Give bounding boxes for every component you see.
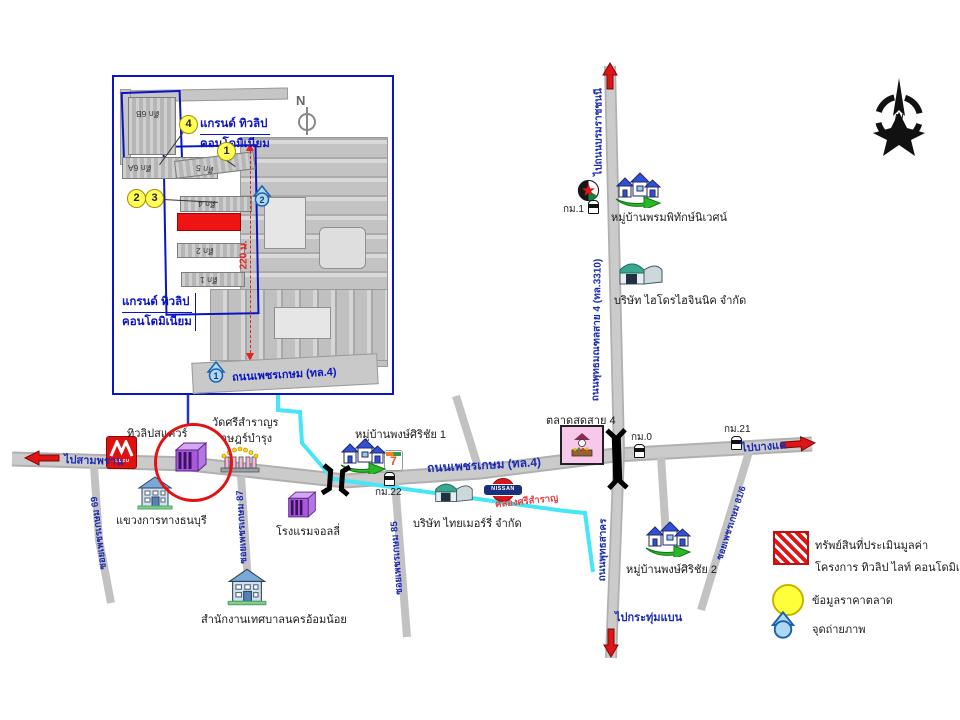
km22-post-icon (384, 472, 395, 486)
building-6a-label: ตึก 6A (128, 161, 151, 175)
project-name-label-bottom: แกรนด์ ทิวลิป คอนโดมิเนียม (122, 293, 196, 331)
km22-label: กม.22 (375, 485, 402, 500)
arrow-west-icon (24, 450, 60, 466)
market-data-point-1: 1 (217, 142, 236, 161)
sai4-road-label: ถนนพุทธมณฑลสาย 4 (ทล.3310) (588, 259, 605, 402)
to-bangkhae-label: ไปบางแค (740, 435, 787, 456)
building-6b (128, 97, 176, 155)
location-map: ตึก 6B ตึก 6A ตึก 5 ตึก 4 ตึก 2 ตึก 1 4 … (0, 0, 960, 720)
km0-post-icon (634, 444, 645, 458)
to-sampran-label: ไปสามพราน (64, 450, 124, 470)
svg-text:1: 1 (213, 371, 218, 381)
building-2-label: ตึก 2 (196, 244, 214, 258)
project-name-line2: คอนโดมิเนียม (122, 313, 192, 331)
market-label: ตลาดสดสาย 4 (546, 411, 616, 429)
legend-photo-point-label: จุดถ่ายภาพ (812, 620, 866, 638)
legend-appraised-property-swatch (773, 531, 809, 565)
jolly-hotel-label: โรงแรมจอลลี่ (276, 522, 340, 540)
km0-label: กม.0 (631, 430, 652, 445)
arrow-north-icon (602, 62, 618, 90)
bridge-icon-west (314, 462, 358, 499)
building-4-label: ตึก 4 (198, 197, 216, 211)
km21-label: กม.21 (724, 422, 751, 437)
inset-north-letter: N (296, 93, 305, 108)
photo-point-2: 2 (252, 185, 272, 207)
legend-appraised-property-label: ทรัพย์สินที่ประเมินมูลค่า (815, 536, 928, 554)
village1-label: หมู่บ้านพงษ์ศิริชัย 1 (355, 425, 446, 443)
legend-market-data-label: ข้อมูลราคาตลาด (812, 591, 893, 609)
subject-property-highlight-circle (154, 423, 233, 502)
municipality-label: สำนักงานเทศบาลนครอ้อมน้อย (201, 610, 347, 628)
to-borom-label: ไปถนนบรมราชชนนี (592, 88, 607, 176)
photo-point-1: 1 (206, 361, 226, 383)
to-krathumbaen-label: ไปกระทุ่มแบน (615, 608, 682, 626)
market-vendor-icon (565, 430, 599, 460)
highway-office-label: แขวงการทางธนบุรี (116, 511, 207, 529)
building-4 (180, 196, 252, 212)
thaimerry-label: บริษัท ไทยเมอร์รี่ จำกัด (413, 514, 522, 532)
building-5-label: ตึก 5 (195, 161, 214, 177)
caltex-logo (577, 179, 600, 202)
project-name-line1: แกรนด์ ทิวลิป (200, 115, 270, 135)
arrow-south-icon (603, 628, 619, 658)
inset-north-circle (298, 113, 316, 131)
project-name-line1: แกรนด์ ทิวลิป (122, 293, 192, 313)
siteplan-block (274, 307, 331, 339)
seven-eleven-7: 7 (385, 454, 402, 468)
building-1-label: ตึก 1 (200, 273, 218, 287)
village3-label: หมู่บ้านพรมพิทักษ์นิเวศน์ (611, 208, 727, 226)
building-6b-label: ตึก 6B (136, 107, 159, 121)
municipality-building-icon (224, 566, 270, 608)
km1-label: กม.1 (563, 202, 584, 217)
siteplan-block (319, 227, 366, 269)
compass-north-letter: N (894, 111, 904, 126)
svg-text:2: 2 (259, 195, 264, 205)
village2-houses-icon (644, 521, 692, 557)
appraised-building-red (177, 213, 241, 231)
hydro-label: บริษัท ไฮโดรไฮจินนิค จำกัด (614, 291, 746, 309)
phutthasakhon-road-label: ถนนพุทธสาคร (595, 518, 611, 581)
market-data-point-3: 3 (145, 189, 164, 208)
km1-post-icon (588, 200, 599, 214)
village2-label: หมู่บ้านพงษ์ศิริชัย 2 (626, 560, 717, 578)
village3-houses-icon (614, 172, 662, 208)
hydro-factory-icon (618, 256, 664, 288)
distance-label: 220 ม. (237, 241, 252, 270)
legend-project-name-label: โครงการ ทิวลิป ไลท์ คอนโดมิเนียม (815, 558, 960, 576)
market-data-point-2: 2 (127, 189, 146, 208)
market-data-point-4: 4 (179, 115, 198, 134)
thaimerry-factory-icon (434, 477, 474, 505)
inset-site-plan: ตึก 6B ตึก 6A ตึก 5 ตึก 4 ตึก 2 ตึก 1 4 … (112, 75, 394, 395)
compass-rose-icon: N (866, 76, 932, 160)
legend-photo-point-icon (770, 611, 796, 639)
